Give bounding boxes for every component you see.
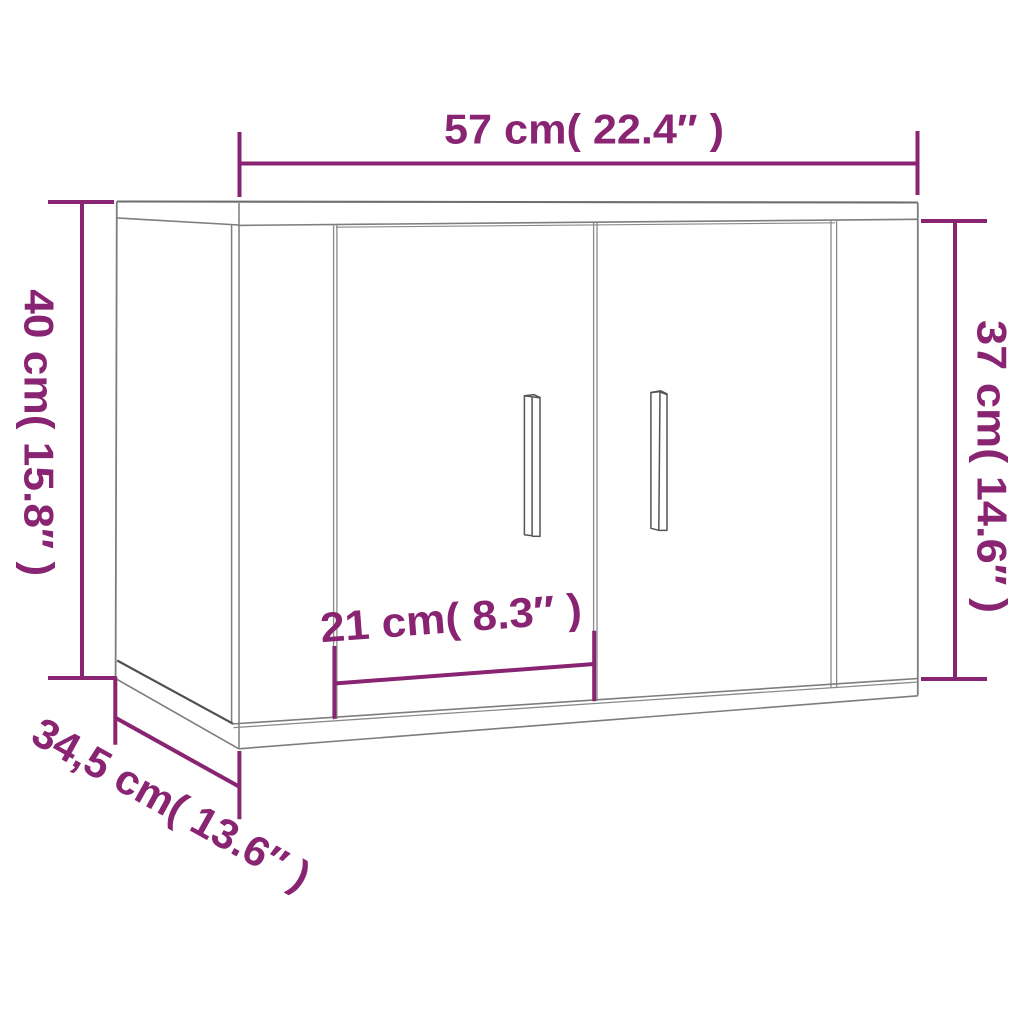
svg-text:40 cm( 15.8″ ): 40 cm( 15.8″ )	[16, 289, 63, 576]
svg-text:57 cm( 22.4″ ): 57 cm( 22.4″ )	[444, 106, 724, 153]
svg-text:37 cm( 14.6″ ): 37 cm( 14.6″ )	[969, 320, 1016, 613]
